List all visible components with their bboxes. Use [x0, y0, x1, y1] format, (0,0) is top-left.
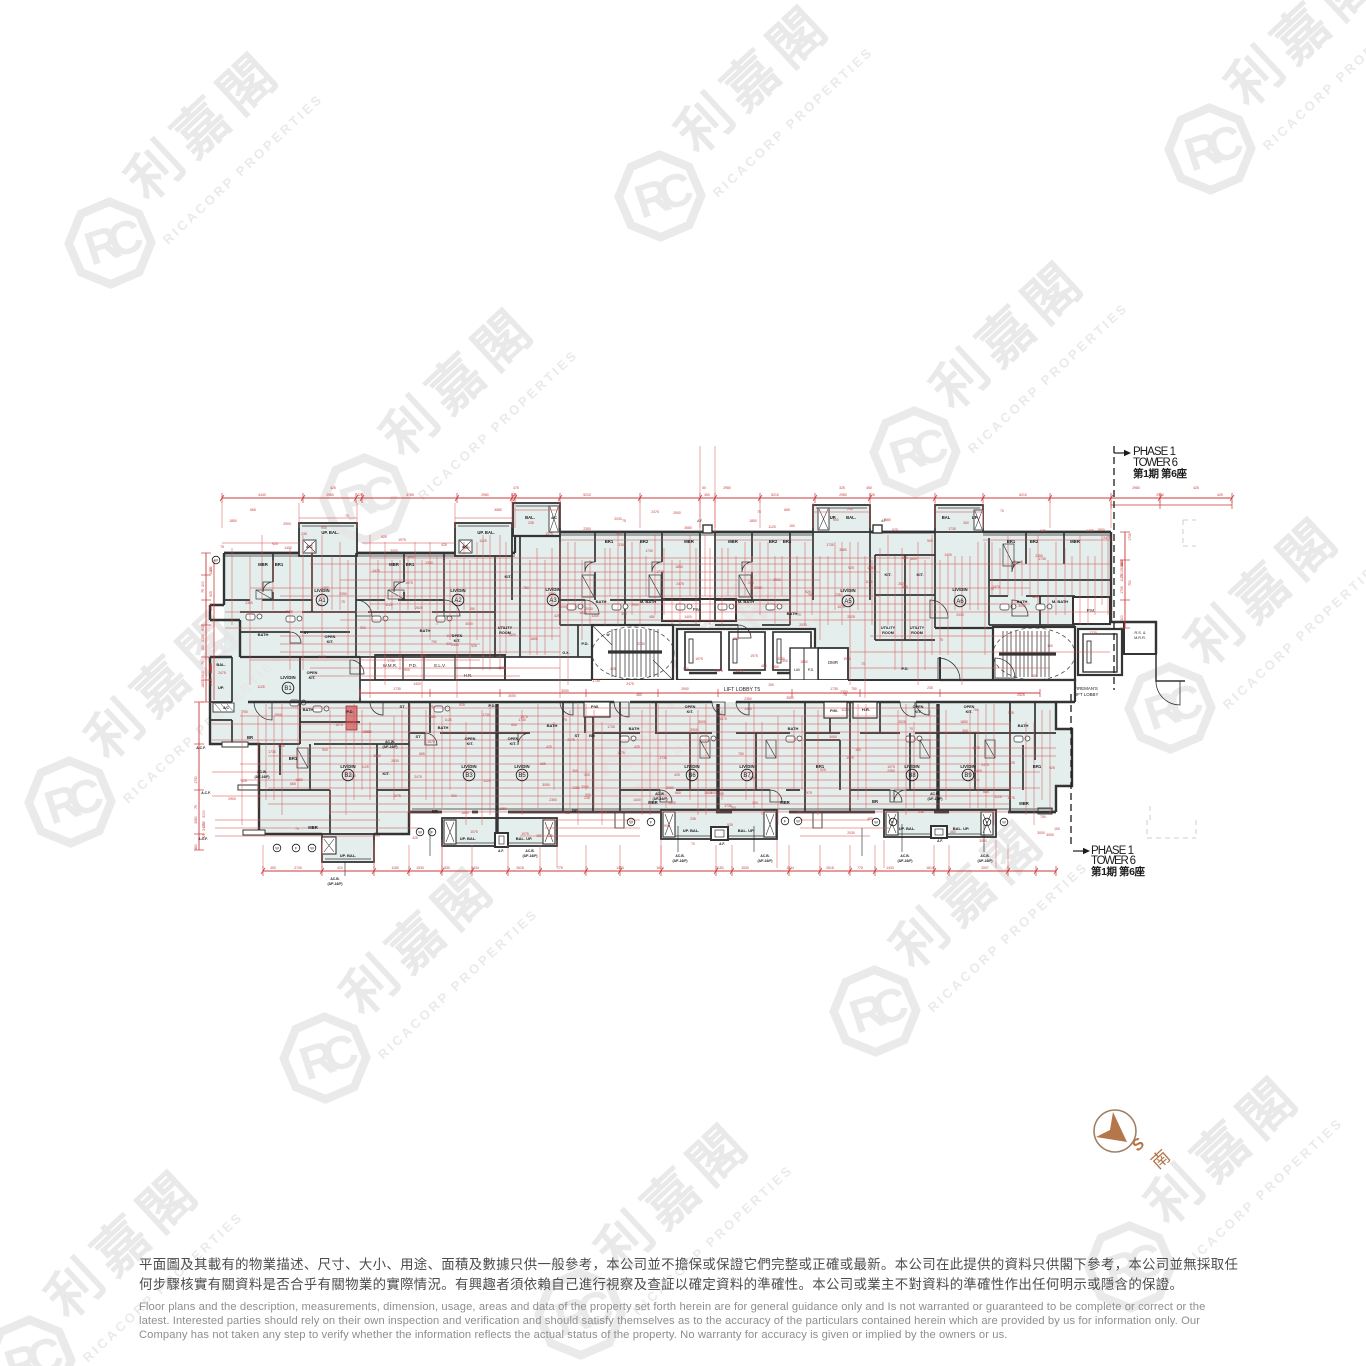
svg-text:1975: 1975 [398, 538, 406, 542]
svg-text:1125: 1125 [841, 708, 848, 712]
svg-text:1814: 1814 [656, 866, 664, 870]
svg-text:70: 70 [295, 827, 299, 831]
svg-text:AC.B.: AC.B. [330, 877, 339, 881]
svg-text:900: 900 [451, 794, 457, 798]
svg-text:MBR: MBR [389, 562, 400, 567]
svg-text:A2: A2 [454, 598, 462, 604]
svg-text:BATH: BATH [1018, 723, 1029, 728]
svg-text:AC.W.: AC.W. [655, 792, 665, 796]
svg-text:BR1: BR1 [605, 539, 614, 544]
svg-text:235: 235 [847, 507, 853, 511]
svg-text:P.D.: P.D. [346, 709, 353, 714]
svg-text:1075: 1075 [405, 581, 413, 585]
svg-text:UP.: UP. [830, 515, 836, 520]
svg-text:LIFT LOBBY: LIFT LOBBY [1074, 692, 1099, 697]
svg-text:425: 425 [546, 745, 552, 749]
svg-text:150: 150 [201, 645, 205, 651]
svg-text:3580: 3580 [786, 696, 794, 700]
svg-text:1975: 1975 [804, 791, 812, 795]
svg-text:75: 75 [716, 809, 720, 813]
svg-text:BR: BR [572, 808, 578, 813]
svg-text:900: 900 [616, 532, 622, 536]
svg-text:2350: 2350 [572, 786, 580, 790]
svg-text:1975: 1975 [1007, 796, 1015, 800]
svg-text:UP.: UP. [972, 515, 978, 520]
svg-text:1975: 1975 [393, 794, 401, 798]
svg-text:1730: 1730 [724, 804, 732, 808]
svg-text:325: 325 [511, 493, 517, 497]
svg-text:KIT.: KIT. [915, 710, 922, 714]
svg-text:235: 235 [835, 593, 841, 597]
svg-text:1434: 1434 [471, 866, 479, 870]
svg-text:OPEN: OPEN [685, 705, 696, 709]
svg-text:1975: 1975 [617, 751, 625, 755]
svg-text:1975: 1975 [599, 810, 607, 814]
svg-text:665: 665 [784, 508, 790, 512]
svg-text:665: 665 [250, 508, 256, 512]
svg-text:775: 775 [857, 866, 863, 870]
svg-text:480: 480 [902, 585, 908, 589]
svg-text:AC.B.: AC.B. [900, 854, 909, 858]
svg-text:300: 300 [782, 659, 788, 663]
svg-text:425: 425 [869, 493, 875, 497]
svg-text:2980: 2980 [1156, 493, 1164, 497]
svg-text:1125: 1125 [361, 765, 368, 769]
svg-text:1400: 1400 [633, 798, 641, 802]
svg-text:235: 235 [528, 521, 534, 525]
svg-text:2030: 2030 [637, 642, 645, 646]
svg-text:925: 925 [209, 591, 213, 597]
svg-text:1735: 1735 [1128, 533, 1132, 541]
svg-text:2900: 2900 [773, 578, 781, 582]
svg-text:KIT.: KIT. [309, 676, 316, 680]
svg-text:3580: 3580 [494, 508, 502, 512]
svg-text:425: 425 [441, 543, 447, 547]
svg-text:2030: 2030 [799, 623, 807, 627]
svg-text:BR: BR [589, 733, 595, 738]
svg-text:B6: B6 [688, 773, 696, 779]
svg-text:A5: A5 [844, 599, 852, 605]
svg-text:BAL. UP.: BAL. UP. [516, 836, 533, 841]
svg-text:2980: 2980 [1132, 486, 1140, 490]
svg-text:2740: 2740 [294, 866, 302, 870]
svg-text:2525: 2525 [1017, 693, 1025, 697]
svg-text:75: 75 [990, 587, 994, 591]
svg-text:75: 75 [563, 718, 567, 722]
svg-text:2900: 2900 [690, 728, 698, 732]
svg-text:1125: 1125 [479, 539, 486, 543]
svg-text:300: 300 [572, 769, 578, 773]
svg-text:LIFT LOBBY T5: LIFT LOBBY T5 [724, 687, 761, 693]
svg-text:925: 925 [1040, 529, 1046, 533]
svg-text:F: F [431, 831, 434, 835]
svg-text:W: W [796, 820, 800, 824]
svg-text:1125: 1125 [768, 525, 775, 529]
svg-text:KIT.: KIT. [382, 771, 389, 776]
svg-text:LIV/DIN: LIV/DIN [314, 588, 329, 593]
svg-text:6210: 6210 [1019, 493, 1027, 497]
svg-text:MBR: MBR [1070, 539, 1081, 544]
svg-text:1125: 1125 [285, 610, 292, 614]
svg-text:3580: 3580 [666, 786, 674, 790]
svg-text:900: 900 [420, 654, 426, 658]
svg-text:665: 665 [290, 782, 296, 786]
svg-text:1530: 1530 [741, 866, 749, 870]
svg-text:425: 425 [330, 486, 336, 490]
svg-text:900: 900 [360, 626, 366, 630]
svg-text:1730: 1730 [1089, 631, 1097, 635]
svg-text:KIT.: KIT. [327, 640, 334, 644]
svg-text:P.M.: P.M. [830, 708, 838, 713]
svg-text:480: 480 [761, 664, 767, 668]
svg-text:UP. BAL.: UP. BAL. [683, 828, 700, 833]
svg-text:何步驟核實有關資料是否合乎有關物業的實際情況。有興趣者須依賴: 何步驟核實有關資料是否合乎有關物業的實際情況。有興趣者須依賴自己進行視察及查証以… [139, 1276, 1183, 1292]
svg-text:2350: 2350 [425, 561, 433, 565]
svg-text:(3/F-16/F): (3/F-16/F) [757, 859, 772, 863]
svg-text:1400: 1400 [974, 769, 982, 773]
svg-text:1975: 1975 [750, 654, 758, 658]
svg-text:BR1: BR1 [1007, 539, 1016, 544]
svg-text:1075: 1075 [715, 669, 723, 673]
svg-text:665: 665 [983, 790, 989, 794]
svg-text:BATH: BATH [629, 726, 640, 731]
svg-text:BR: BR [432, 809, 438, 814]
svg-text:3000: 3000 [716, 792, 724, 796]
svg-text:2030: 2030 [847, 831, 855, 835]
svg-text:UP. BAL.: UP. BAL. [477, 530, 494, 535]
svg-text:750: 750 [523, 586, 529, 590]
svg-text:2350: 2350 [245, 601, 253, 605]
svg-text:A.C.F.: A.C.F. [201, 791, 210, 795]
svg-text:ROOM: ROOM [499, 631, 511, 635]
svg-text:BR1: BR1 [406, 562, 415, 567]
svg-text:2030: 2030 [956, 613, 964, 617]
svg-text:BAL.: BAL. [216, 662, 225, 667]
svg-text:1530: 1530 [416, 866, 424, 870]
svg-text:(3/F-16/F): (3/F-16/F) [897, 859, 912, 863]
svg-text:(3/F-16/F): (3/F-16/F) [672, 859, 687, 863]
svg-text:E.L.V.: E.L.V. [434, 663, 446, 668]
svg-text:KIT.: KIT. [454, 639, 461, 643]
svg-text:1975: 1975 [846, 756, 854, 760]
svg-text:A/C: A/C [551, 516, 557, 520]
svg-text:75: 75 [939, 638, 943, 642]
svg-text:AC.B.: AC.B. [760, 854, 769, 858]
svg-text:ST: ST [303, 630, 309, 635]
svg-text:2475: 2475 [651, 510, 659, 514]
svg-text:450: 450 [704, 493, 710, 497]
svg-text:1850: 1850 [229, 519, 237, 523]
svg-text:BATH: BATH [547, 723, 558, 728]
svg-text:425: 425 [554, 614, 560, 618]
svg-text:2618: 2618 [516, 866, 524, 870]
svg-text:OPEN: OPEN [508, 737, 519, 741]
svg-text:2525: 2525 [898, 720, 906, 724]
svg-text:B3: B3 [465, 773, 473, 779]
svg-text:3050: 3050 [1046, 833, 1054, 837]
svg-text:1730: 1730 [518, 718, 526, 722]
svg-text:900: 900 [683, 667, 689, 671]
svg-text:830: 830 [444, 866, 450, 870]
svg-text:1400: 1400 [744, 707, 752, 711]
svg-text:2900: 2900 [228, 797, 236, 801]
svg-text:1850: 1850 [201, 680, 205, 688]
svg-text:425: 425 [357, 493, 363, 497]
svg-text:425: 425 [674, 773, 680, 777]
svg-text:M. BATH: M. BATH [640, 599, 656, 604]
svg-text:P.D.: P.D. [808, 668, 815, 672]
svg-text:2030: 2030 [362, 730, 370, 734]
svg-text:2980: 2980 [481, 493, 489, 497]
svg-text:2475: 2475 [626, 682, 634, 686]
svg-text:300: 300 [797, 810, 803, 814]
svg-text:W: W [214, 559, 218, 563]
svg-text:5210: 5210 [583, 493, 591, 497]
svg-text:W: W [1002, 821, 1006, 825]
svg-text:1433: 1433 [886, 866, 894, 870]
svg-text:480: 480 [536, 834, 542, 838]
svg-text:925: 925 [459, 703, 465, 707]
svg-text:P.D.: P.D. [581, 641, 588, 646]
svg-text:2525: 2525 [209, 678, 213, 686]
svg-text:480: 480 [867, 817, 873, 821]
svg-text:750: 750 [1040, 815, 1046, 819]
svg-text:ROOM: ROOM [911, 631, 923, 635]
svg-text:BAL.: BAL. [846, 515, 856, 520]
svg-text:1730: 1730 [482, 713, 490, 717]
svg-text:A/C: A/C [223, 706, 229, 710]
svg-text:KIT.: KIT. [966, 710, 973, 714]
svg-text:平面圖及其載有的物業描述、尺寸、大小、用途、面積及數據只供一: 平面圖及其載有的物業描述、尺寸、大小、用途、面積及數據只供一般參考，本公司並不擔… [139, 1256, 1238, 1272]
svg-text:AC.W.: AC.W. [930, 792, 940, 796]
svg-text:425: 425 [241, 779, 247, 783]
svg-text:480: 480 [649, 615, 655, 619]
svg-text:1125: 1125 [444, 718, 451, 722]
svg-text:A.F.: A.F. [719, 842, 725, 846]
svg-text:925: 925 [805, 590, 811, 594]
svg-text:MBR: MBR [780, 800, 790, 805]
svg-text:KIT.: KIT. [884, 572, 891, 577]
svg-text:300: 300 [902, 556, 908, 560]
svg-text:2475: 2475 [676, 582, 684, 586]
svg-text:W: W [629, 821, 633, 825]
svg-text:1125: 1125 [277, 744, 284, 748]
svg-text:1735: 1735 [826, 543, 834, 547]
svg-text:(3/F-16/F): (3/F-16/F) [254, 775, 269, 779]
svg-text:750: 750 [738, 752, 744, 756]
svg-text:2900: 2900 [201, 671, 205, 679]
svg-text:UP. BAL.: UP. BAL. [340, 853, 357, 858]
svg-text:1125: 1125 [257, 685, 264, 689]
svg-text:70: 70 [201, 661, 205, 665]
svg-text:300: 300 [201, 581, 205, 587]
svg-text:2525: 2525 [847, 615, 855, 619]
svg-text:A/C: A/C [306, 545, 312, 549]
svg-text:1433: 1433 [616, 866, 624, 870]
svg-text:1075: 1075 [545, 532, 553, 536]
svg-text:MBR: MBR [258, 562, 269, 567]
svg-text:925: 925 [1049, 766, 1055, 770]
svg-text:1075: 1075 [719, 717, 727, 721]
svg-text:1735: 1735 [948, 527, 956, 531]
svg-text:300: 300 [621, 612, 627, 616]
svg-text:150: 150 [789, 524, 795, 528]
svg-text:2350: 2350 [744, 697, 752, 701]
svg-text:B7: B7 [743, 773, 751, 779]
svg-text:BAL. UP.: BAL. UP. [738, 828, 755, 833]
svg-text:475: 475 [513, 486, 519, 490]
svg-text:BATH: BATH [788, 726, 799, 731]
svg-text:1125: 1125 [209, 567, 213, 574]
svg-text:BAL.: BAL. [525, 515, 535, 520]
svg-text:W: W [310, 847, 314, 851]
svg-text:425: 425 [1009, 761, 1015, 765]
svg-text:300: 300 [1120, 615, 1124, 621]
svg-text:2900: 2900 [274, 713, 282, 717]
svg-text:LIV/DIN: LIV/DIN [450, 588, 465, 593]
svg-text:3580: 3580 [684, 526, 692, 530]
svg-text:A/C: A/C [462, 545, 468, 549]
svg-text:M.R.R.: M.R.R. [1134, 636, 1146, 640]
svg-text:480: 480 [636, 693, 642, 697]
svg-text:150: 150 [855, 748, 861, 752]
svg-text:750: 750 [431, 640, 437, 644]
svg-text:DMR: DMR [828, 660, 838, 665]
svg-text:1735: 1735 [393, 687, 401, 691]
svg-text:BR1: BR1 [275, 562, 284, 567]
svg-text:3050: 3050 [373, 754, 381, 758]
svg-text:(3/F-16/F): (3/F-16/F) [652, 797, 667, 801]
svg-text:75: 75 [843, 693, 847, 697]
svg-text:1150: 1150 [391, 866, 398, 870]
svg-text:925: 925 [272, 542, 278, 546]
svg-text:75: 75 [341, 600, 345, 604]
svg-text:BR: BR [247, 735, 253, 740]
svg-text:P.D.: P.D. [488, 703, 495, 708]
svg-text:BATH: BATH [787, 611, 798, 616]
svg-text:W: W [874, 821, 878, 825]
svg-text:A.C.F.: A.C.F. [198, 837, 207, 841]
svg-text:BAL. UP.: BAL. UP. [953, 826, 970, 831]
svg-text:750: 750 [1120, 572, 1124, 578]
svg-text:1400: 1400 [684, 615, 692, 619]
svg-text:M. BATH: M. BATH [738, 599, 754, 604]
svg-text:70: 70 [345, 514, 349, 518]
svg-text:75: 75 [201, 589, 205, 593]
svg-text:1075: 1075 [735, 669, 743, 673]
svg-text:1850: 1850 [461, 811, 469, 815]
svg-text:BR: BR [872, 799, 878, 804]
svg-text:A.C.F.: A.C.F. [196, 746, 205, 750]
svg-text:1975: 1975 [427, 740, 435, 744]
svg-text:OPEN: OPEN [913, 705, 924, 709]
svg-text:70: 70 [1000, 509, 1004, 513]
svg-text:F: F [650, 821, 653, 825]
svg-text:2030: 2030 [614, 517, 622, 521]
svg-text:450: 450 [270, 866, 276, 870]
svg-text:LAV: LAV [794, 668, 801, 672]
svg-text:M. BATH: M. BATH [1052, 599, 1068, 604]
svg-text:Company has not taken any step: Company has not taken any step to verify… [139, 1329, 1007, 1341]
svg-text:665: 665 [511, 723, 517, 727]
svg-text:3050: 3050 [829, 735, 837, 739]
svg-text:LIV/DIN: LIV/DIN [684, 764, 699, 769]
svg-text:900: 900 [322, 748, 328, 752]
svg-text:1400: 1400 [413, 682, 421, 686]
svg-text:1850: 1850 [295, 778, 303, 782]
svg-text:B8: B8 [908, 773, 916, 779]
svg-text:UP. BAL.: UP. BAL. [321, 530, 338, 535]
svg-text:OPEN: OPEN [307, 671, 318, 675]
svg-text:75: 75 [622, 519, 626, 523]
svg-text:BATH: BATH [258, 632, 269, 637]
svg-text:MBR: MBR [684, 539, 695, 544]
svg-text:3580: 3580 [428, 715, 436, 719]
svg-text:BR1: BR1 [816, 764, 825, 769]
svg-text:BATH: BATH [596, 599, 607, 604]
svg-text:A.F.: A.F. [498, 849, 504, 853]
svg-text:2350: 2350 [549, 798, 557, 802]
svg-text:1730: 1730 [194, 776, 198, 784]
svg-text:925: 925 [471, 644, 477, 648]
svg-text:KIT.: KIT. [510, 742, 517, 746]
svg-text:1975: 1975 [972, 746, 980, 750]
svg-text:300: 300 [710, 791, 716, 795]
svg-text:3000: 3000 [1037, 831, 1045, 835]
svg-text:(3/F-16/F): (3/F-16/F) [522, 854, 537, 858]
svg-text:1975: 1975 [843, 657, 851, 661]
svg-text:FIREMAN'S: FIREMAN'S [1074, 686, 1098, 691]
svg-text:1814: 1814 [926, 866, 934, 870]
svg-text:1434: 1434 [786, 866, 794, 870]
svg-text:480: 480 [194, 844, 198, 850]
svg-text:2350: 2350 [618, 543, 626, 547]
svg-text:2900: 2900 [681, 687, 689, 691]
svg-text:F: F [295, 847, 298, 851]
svg-text:BATH: BATH [420, 628, 431, 633]
svg-text:300: 300 [408, 555, 414, 559]
svg-text:A1: A1 [318, 598, 326, 604]
svg-text:H.R.: H.R. [464, 673, 473, 678]
svg-text:LIV/DIN: LIV/DIN [514, 764, 529, 769]
svg-text:1075: 1075 [335, 723, 343, 727]
svg-text:75: 75 [220, 545, 224, 549]
svg-text:3580: 3580 [839, 548, 847, 552]
svg-text:2350: 2350 [201, 634, 205, 642]
svg-text:LIV/DIN: LIV/DIN [545, 587, 560, 592]
svg-text:B2: B2 [344, 773, 352, 779]
svg-text:75: 75 [757, 510, 761, 514]
svg-text:900: 900 [664, 824, 670, 828]
svg-text:OPEN: OPEN [465, 737, 476, 741]
svg-text:1850: 1850 [675, 565, 683, 569]
svg-text:2475: 2475 [372, 569, 380, 573]
svg-text:2618: 2618 [826, 866, 834, 870]
svg-text:665: 665 [675, 791, 681, 795]
svg-text:latest. Interested parties sho: latest. Interested parties should rely o… [139, 1315, 1200, 1327]
svg-text:3050: 3050 [542, 783, 550, 787]
svg-text:BR2: BR2 [640, 539, 649, 544]
svg-text:Floor plans and the descriptio: Floor plans and the description, measure… [139, 1301, 1205, 1313]
svg-text:F: F [784, 820, 787, 824]
svg-text:3580: 3580 [194, 816, 198, 824]
svg-text:1735: 1735 [1086, 529, 1094, 533]
svg-text:70: 70 [797, 613, 801, 617]
svg-text:1735: 1735 [1038, 557, 1046, 561]
svg-text:3050: 3050 [754, 586, 762, 590]
svg-text:LIV/DIN: LIV/DIN [739, 764, 754, 769]
svg-text:1850: 1850 [771, 665, 779, 669]
